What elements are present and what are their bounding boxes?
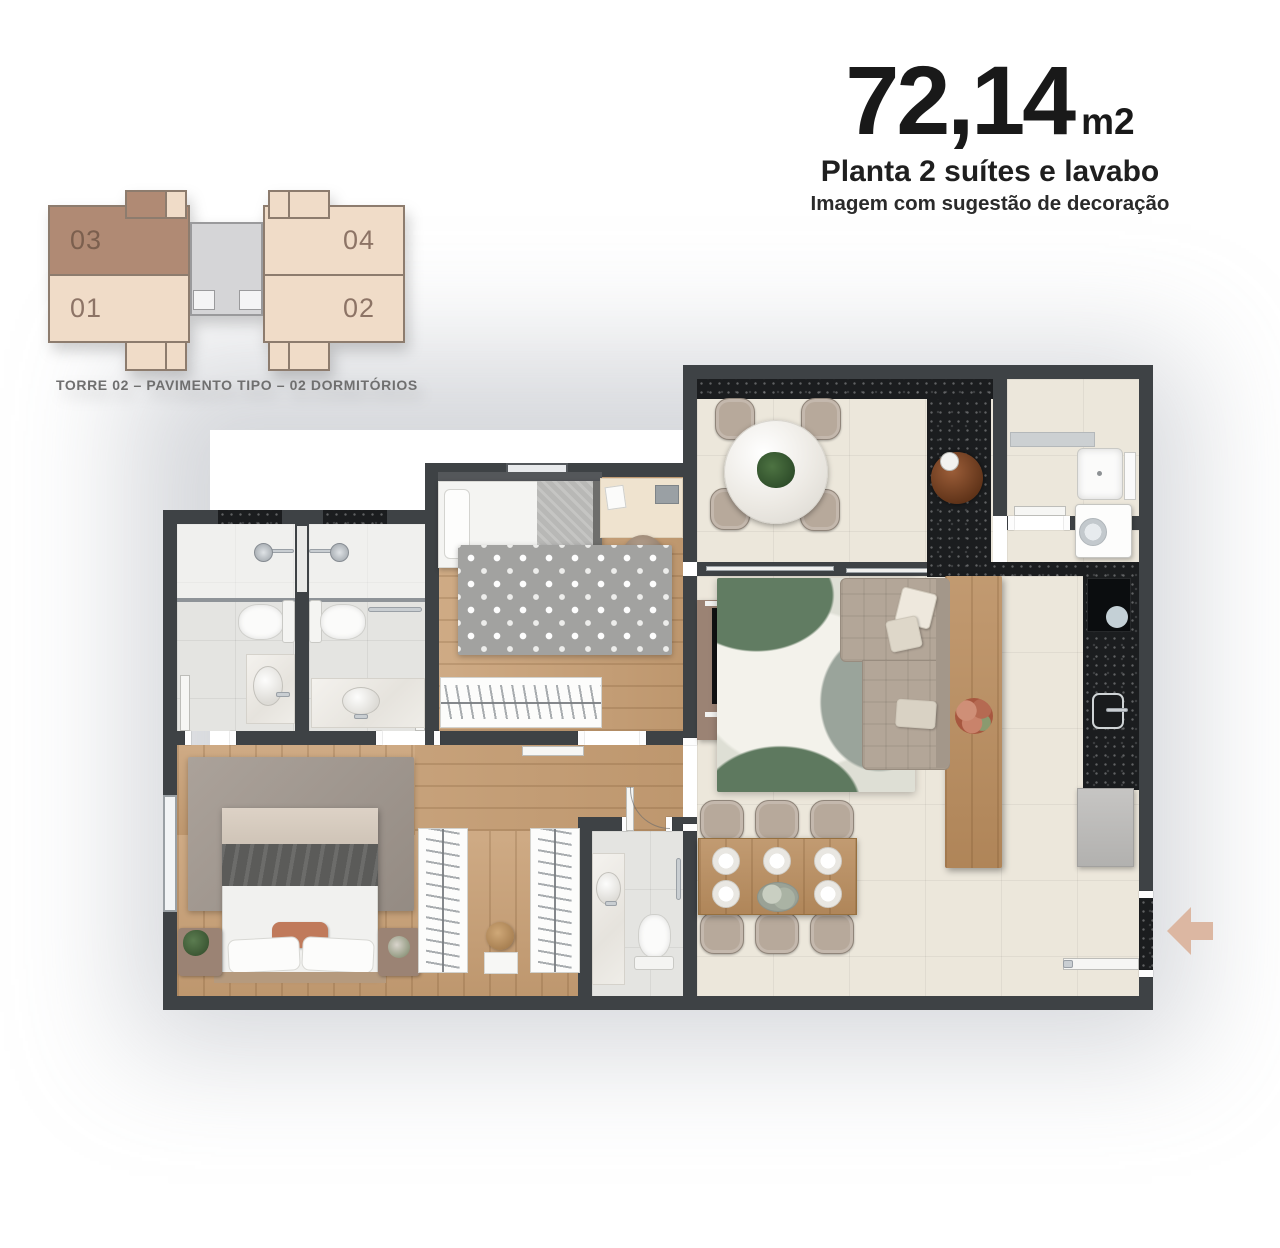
master-pillow bbox=[301, 936, 375, 974]
bedroom2-desk-papers bbox=[604, 485, 626, 510]
bath2-shower-glass bbox=[309, 598, 425, 602]
door-jamb bbox=[230, 731, 236, 745]
door-jamb bbox=[434, 731, 440, 745]
bath1-shower-head bbox=[254, 543, 273, 562]
sofa-pillow bbox=[895, 699, 937, 730]
wall-mid-b bbox=[236, 731, 382, 745]
laundry-door-leaf bbox=[1014, 506, 1066, 516]
bath1-shower-glass bbox=[177, 598, 295, 602]
wall-left bbox=[163, 510, 177, 1010]
door-jamb bbox=[376, 731, 382, 745]
dining-plate bbox=[814, 847, 842, 875]
wall-terrace-left bbox=[683, 379, 697, 562]
wall-step bbox=[425, 477, 439, 524]
nightstand-decor bbox=[388, 936, 410, 958]
terrace-table-plant bbox=[757, 452, 795, 488]
wall-bath-top bbox=[163, 510, 439, 524]
sofa-back bbox=[936, 578, 950, 768]
closet-wardrobe-right bbox=[530, 828, 580, 973]
bath2-window bbox=[323, 510, 387, 524]
lavabo-towel-bar bbox=[676, 858, 681, 900]
door-jamb bbox=[683, 824, 697, 831]
bath1-toilet-tank bbox=[282, 600, 295, 643]
closet-shelf bbox=[484, 952, 518, 974]
bedroom2-laptop bbox=[655, 485, 679, 504]
door-jamb bbox=[1008, 516, 1014, 530]
bath1-door-leaf bbox=[180, 675, 190, 731]
wall-top-right bbox=[683, 365, 1153, 379]
island-flowers bbox=[955, 698, 993, 734]
entrance-arrow-head bbox=[1167, 907, 1191, 955]
wall-laundry-divider bbox=[993, 379, 1007, 516]
sliding-door-glass-1 bbox=[706, 566, 834, 571]
bath-divider-glass bbox=[297, 526, 307, 592]
entrance-jamb bbox=[1139, 970, 1153, 977]
bath2-shower-head bbox=[330, 543, 349, 562]
entrance-threshold bbox=[1139, 898, 1153, 970]
dining-chair bbox=[700, 800, 744, 842]
door-jamb bbox=[578, 731, 584, 745]
dining-chair bbox=[755, 800, 799, 842]
entrance-door-leaf bbox=[1063, 958, 1139, 970]
dining-centerpiece bbox=[757, 882, 799, 912]
master-headboard bbox=[214, 972, 386, 983]
bath1-shower-zone bbox=[177, 524, 295, 600]
dining-chair bbox=[810, 912, 854, 954]
door-jamb bbox=[683, 738, 697, 745]
dining-plate bbox=[814, 880, 842, 908]
laundry-tank-drain bbox=[1097, 471, 1102, 476]
entrance-arrow-icon bbox=[1190, 922, 1213, 940]
dining-chair bbox=[810, 800, 854, 842]
floorplan bbox=[0, 0, 1280, 1248]
closet-wardrobe-left bbox=[418, 828, 468, 973]
master-bed-blanket bbox=[222, 844, 378, 886]
closet-stool bbox=[486, 922, 514, 950]
bath1-window bbox=[218, 510, 282, 524]
fridge bbox=[1077, 788, 1134, 867]
entrance-door-handle bbox=[1063, 960, 1073, 968]
bath1-faucet bbox=[276, 692, 290, 697]
kitchen-faucet bbox=[1106, 708, 1128, 712]
wall-bottom bbox=[163, 996, 1153, 1010]
master-bed-fold bbox=[222, 808, 378, 844]
washing-machine-door bbox=[1079, 518, 1107, 546]
bedroom2-door-leaf bbox=[522, 746, 584, 756]
lavabo-toilet-bowl bbox=[638, 914, 671, 958]
terrace-top-counter bbox=[697, 379, 993, 399]
laundry-side-panel bbox=[1124, 452, 1136, 500]
master-window bbox=[163, 795, 177, 912]
sofa-pillow bbox=[885, 615, 923, 653]
bath2-faucet bbox=[354, 714, 368, 719]
dining-plate bbox=[763, 847, 791, 875]
door-jamb bbox=[1064, 516, 1070, 530]
bath1-toilet-bowl bbox=[238, 604, 284, 640]
bedroom2-wardrobe bbox=[440, 677, 602, 728]
bath2-shower-zone bbox=[309, 524, 425, 600]
master-pillow bbox=[227, 936, 301, 974]
dining-plate bbox=[712, 847, 740, 875]
cooktop-burner bbox=[1106, 606, 1128, 628]
bath1-sink bbox=[253, 666, 283, 706]
door-jamb bbox=[640, 731, 646, 745]
bedroom2-headboard bbox=[438, 472, 602, 481]
bath2-toilet-bowl bbox=[320, 604, 366, 640]
lavabo-toilet-tank bbox=[634, 956, 674, 970]
terrace-kettle bbox=[940, 452, 959, 471]
wall-lavabo-right bbox=[683, 831, 697, 996]
wall-living-left bbox=[683, 576, 697, 745]
door-jamb bbox=[185, 731, 191, 745]
dining-chair bbox=[755, 912, 799, 954]
wall-bath2-right bbox=[425, 524, 439, 745]
entrance-jamb bbox=[1139, 891, 1153, 898]
lavabo-faucet bbox=[605, 901, 617, 906]
dining-chair bbox=[700, 912, 744, 954]
wall-lavabo-left bbox=[578, 817, 592, 996]
bath2-sink bbox=[342, 687, 380, 715]
dining-plate bbox=[712, 880, 740, 908]
laundry-shelf bbox=[1010, 432, 1095, 447]
bedroom2-rug bbox=[458, 545, 672, 655]
floorplan-page: 72,14 m2 Planta 2 suítes e lavabo Imagem… bbox=[0, 0, 1280, 1248]
wall-mid-c bbox=[434, 731, 584, 745]
bath2-towel-bar bbox=[368, 607, 422, 612]
